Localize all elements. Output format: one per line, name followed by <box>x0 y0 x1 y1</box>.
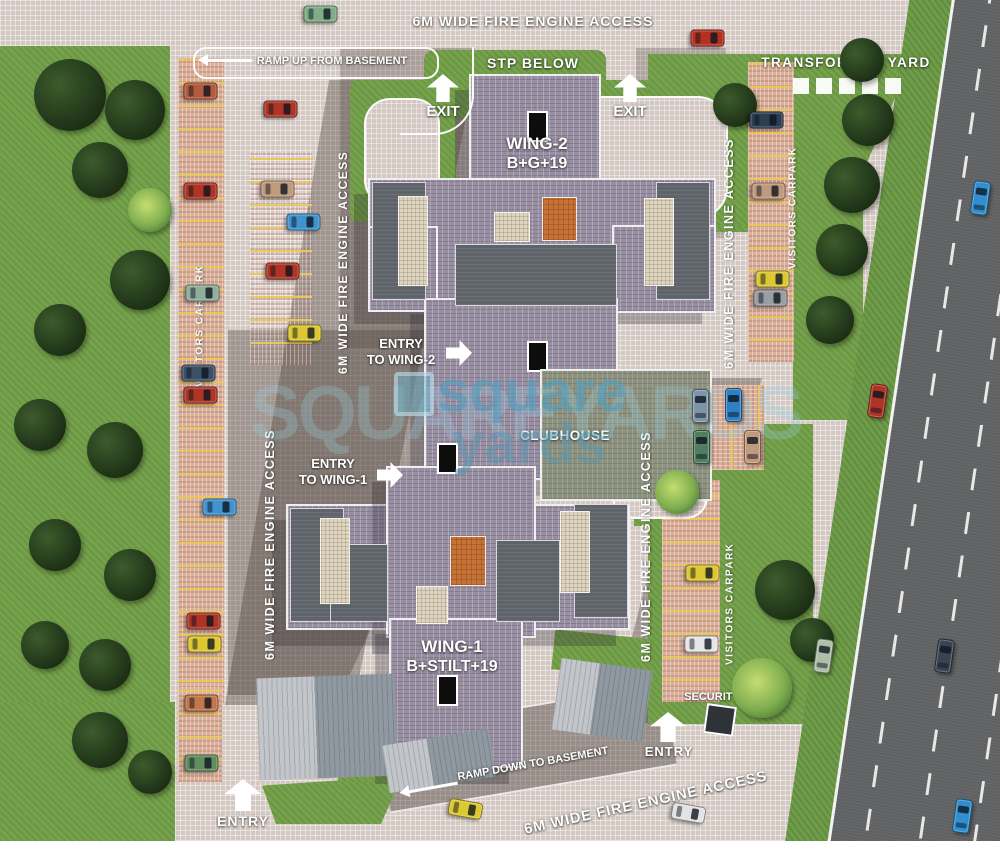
car <box>266 263 300 280</box>
car <box>186 285 220 302</box>
car <box>203 499 237 516</box>
wing1-name: WING-1 <box>406 637 497 657</box>
basement-ramp-slab-left <box>256 674 397 781</box>
security-cabin <box>703 703 737 737</box>
car <box>184 183 218 200</box>
tree <box>79 639 131 691</box>
tree <box>87 422 143 478</box>
tree <box>72 712 128 768</box>
car <box>693 430 710 464</box>
tree <box>29 519 81 571</box>
transformer-pad <box>839 78 855 94</box>
tree <box>755 560 815 620</box>
car <box>182 365 216 382</box>
label-entry-wing1: ENTRY TO WING-1 <box>299 456 367 487</box>
wing1-orange-panel <box>450 536 486 586</box>
car <box>185 755 219 772</box>
car <box>692 389 709 423</box>
car <box>756 271 790 288</box>
tree <box>110 250 170 310</box>
tree <box>105 80 165 140</box>
site-plan: 6M WIDE FIRE ENGINE ACCESS RAMP UP FROM … <box>0 0 1000 841</box>
entry-wing1-line2: TO WING-1 <box>299 472 367 488</box>
ramp-up-arrow <box>207 59 252 62</box>
entry-wing1-line1: ENTRY <box>299 456 367 472</box>
palm-tree <box>128 188 172 232</box>
label-entry-wing2: ENTRY TO WING-2 <box>367 336 435 367</box>
wing2-tile-right <box>644 198 674 286</box>
label-fire-access-left-upper: 6M WIDE FIRE ENGINE ACCESS <box>334 155 352 370</box>
entry-wing2-line2: TO WING-2 <box>367 352 435 368</box>
lawn-bottom-wedge <box>262 776 402 824</box>
label-fire-access-left-lower: 6M WIDE FIRE ENGINE ACCESS <box>261 427 279 663</box>
palm-tree <box>732 658 792 718</box>
car <box>691 30 725 47</box>
wing1-lift-core-upper <box>437 443 458 474</box>
tree <box>34 59 106 131</box>
car <box>188 636 222 653</box>
car <box>288 325 322 342</box>
tree <box>806 296 854 344</box>
label-entry-right: ENTRY <box>645 744 694 760</box>
car <box>184 83 218 100</box>
label-visitors-carpark-right-upper: VISITORS CARPARK <box>784 150 802 265</box>
basement-ramp-slab-right <box>551 658 652 742</box>
wing1-tile-left <box>320 518 350 604</box>
spine-lift-core <box>527 341 548 372</box>
label-visitors-carpark-right-lower: VISITORS CARPARK <box>721 545 739 662</box>
wing1-slate-midright <box>496 540 560 622</box>
tree <box>816 224 868 276</box>
car <box>744 430 761 464</box>
tree <box>14 399 66 451</box>
label-wing2: WING-2 B+G+19 <box>506 134 567 174</box>
label-clubhouse: CLUBHOUSE <box>520 428 610 444</box>
wing1-lift-core-lower <box>437 675 458 706</box>
wing2-slate-center <box>455 244 617 306</box>
lawn-left <box>0 46 170 702</box>
tree <box>72 142 128 198</box>
tree <box>21 621 69 669</box>
car <box>287 214 321 231</box>
car <box>754 290 788 307</box>
car <box>670 802 706 825</box>
label-wing1: WING-1 B+STILT+19 <box>406 637 497 677</box>
palm-tree <box>655 470 699 514</box>
car <box>184 387 218 404</box>
transformer-pad <box>816 78 832 94</box>
tree <box>840 38 884 82</box>
car <box>686 565 720 582</box>
wing1-floors: B+STILT+19 <box>406 657 497 676</box>
entry-wing2-line1: ENTRY <box>367 336 435 352</box>
tree <box>104 549 156 601</box>
wing1-tile-center <box>416 586 448 624</box>
car <box>725 388 742 422</box>
wing1-tile-right <box>560 511 590 593</box>
car <box>264 101 298 118</box>
car <box>447 798 483 821</box>
label-fire-access-right-lower: 6M WIDE FIRE ENGINE ACCESS <box>637 423 655 670</box>
transformer-pad <box>885 78 901 94</box>
label-exit-left: EXIT <box>426 103 459 121</box>
transformer-pad <box>793 78 809 94</box>
car <box>187 613 221 630</box>
label-entry-bottom: ENTRY <box>217 813 269 830</box>
tree <box>34 304 86 356</box>
car <box>750 112 784 129</box>
label-ramp-up: RAMP UP FROM BASEMENT <box>257 55 408 68</box>
label-fire-access-top: 6M WIDE FIRE ENGINE ACCESS <box>413 13 654 30</box>
transformer-pads <box>793 78 901 94</box>
car <box>685 636 719 653</box>
entry-arrow-bottom <box>224 779 262 811</box>
wing2-tile-center <box>494 212 530 242</box>
wing2-name: WING-2 <box>506 134 567 154</box>
label-fire-access-right-upper: 6M WIDE FIRE ENGINE ACCESS <box>720 137 738 370</box>
car <box>752 183 786 200</box>
label-exit-right: EXIT <box>613 103 646 121</box>
label-stp-below: STP BELOW <box>487 55 579 72</box>
car <box>185 695 219 712</box>
wing2-floors: B+G+19 <box>506 154 567 173</box>
car <box>261 181 295 198</box>
car <box>304 6 338 23</box>
tree <box>128 750 172 794</box>
wing2-orange-panel <box>542 197 577 241</box>
tree <box>842 94 894 146</box>
wing2-tile-left <box>398 196 428 286</box>
tree <box>824 157 880 213</box>
